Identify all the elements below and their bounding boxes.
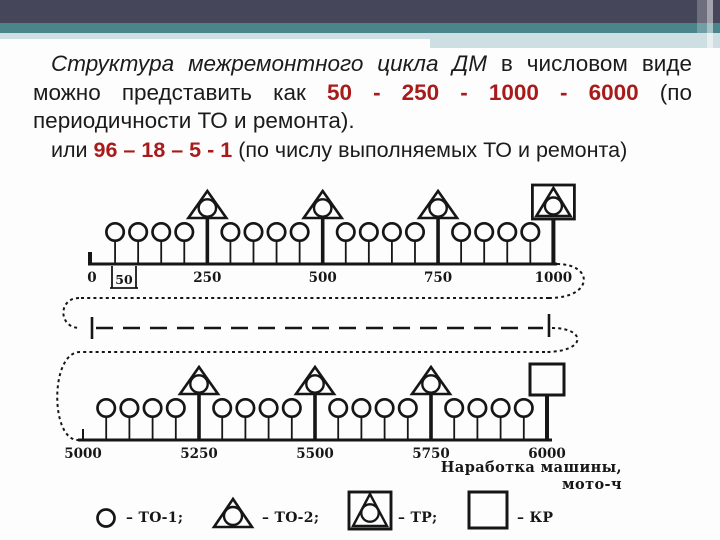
to1-circle bbox=[330, 399, 347, 416]
legend-label-to1: – ТО-1; bbox=[126, 510, 183, 526]
to1-circle bbox=[291, 223, 308, 240]
legend-label-kr: – КР bbox=[517, 510, 553, 526]
tick-label: 5000 bbox=[64, 446, 102, 462]
to1-circle bbox=[237, 399, 254, 416]
to1-circle bbox=[260, 399, 277, 416]
to1-circle bbox=[399, 399, 416, 416]
tick-label: 5500 bbox=[296, 446, 334, 462]
to1-circle bbox=[214, 399, 231, 416]
cycle-curve-left-1 bbox=[63, 298, 80, 328]
to1-circle bbox=[283, 399, 300, 416]
to2-triangle bbox=[296, 367, 334, 394]
legend-item-to2 bbox=[214, 499, 252, 527]
to1-circle bbox=[245, 223, 262, 240]
to2-inner-circle bbox=[190, 375, 207, 392]
to1-circle bbox=[144, 399, 161, 416]
legend-kr-square bbox=[469, 492, 507, 528]
to1-circle bbox=[515, 399, 532, 416]
to2-inner-circle bbox=[422, 375, 439, 392]
legend-tr-circle bbox=[361, 504, 378, 521]
to2-triangle bbox=[536, 188, 570, 216]
tick-label: 1000 bbox=[535, 270, 573, 286]
to1-circle bbox=[353, 399, 370, 416]
to1-circle bbox=[222, 223, 239, 240]
to2-inner-circle bbox=[199, 199, 216, 216]
to2-triangle bbox=[180, 367, 218, 394]
to1-circle bbox=[452, 223, 469, 240]
tick-label: 500 bbox=[309, 270, 337, 286]
kr-marker bbox=[530, 364, 564, 395]
legend-item-tr bbox=[349, 492, 391, 529]
to1-circle bbox=[406, 223, 423, 240]
to1-circle bbox=[167, 399, 184, 416]
to1-circle bbox=[376, 399, 393, 416]
to2-inner-circle bbox=[306, 375, 323, 392]
legend-item-kr bbox=[469, 492, 507, 528]
to1-circle bbox=[492, 399, 509, 416]
to2-triangle bbox=[188, 191, 226, 218]
to1-circle bbox=[522, 223, 539, 240]
to1-circle bbox=[337, 223, 354, 240]
legend-to2-circle bbox=[224, 507, 242, 525]
tick-label: 750 bbox=[424, 270, 452, 286]
to1-circle bbox=[469, 399, 486, 416]
to1-circle bbox=[176, 223, 193, 240]
to1-circle bbox=[268, 223, 285, 240]
to2-triangle bbox=[412, 367, 450, 394]
legend-label-to2: – ТО-2; bbox=[262, 510, 319, 526]
tick-label: 250 bbox=[193, 270, 221, 286]
legend-to1-circle bbox=[98, 510, 115, 527]
to1-circle bbox=[383, 223, 400, 240]
to1-circle bbox=[475, 223, 492, 240]
legend-to2-triangle bbox=[214, 499, 252, 527]
to1-circle bbox=[129, 223, 146, 240]
legend-item-to1 bbox=[98, 510, 115, 527]
to2-inner-circle bbox=[314, 199, 331, 216]
interval-label: 50 bbox=[115, 272, 133, 287]
to1-circle bbox=[121, 399, 138, 416]
to1-circle bbox=[153, 223, 170, 240]
tick-label: 0 bbox=[87, 270, 96, 286]
to2-triangle bbox=[419, 191, 457, 218]
to1-circle bbox=[106, 223, 123, 240]
cycle-curve-left-2 bbox=[57, 352, 80, 440]
to2-triangle bbox=[304, 191, 342, 218]
axis-label: Наработка машины, мото-ч bbox=[388, 459, 622, 493]
to1-circle bbox=[98, 399, 115, 416]
tick-label: 5250 bbox=[180, 446, 218, 462]
to1-circle bbox=[360, 223, 377, 240]
to1-circle bbox=[446, 399, 463, 416]
legend-label-tr: – ТР; bbox=[398, 510, 438, 526]
slide: Структура межремонтного цикла ДМ в число… bbox=[0, 0, 720, 540]
to2-inner-circle bbox=[545, 198, 562, 215]
to1-circle bbox=[499, 223, 516, 240]
to2-inner-circle bbox=[429, 199, 446, 216]
